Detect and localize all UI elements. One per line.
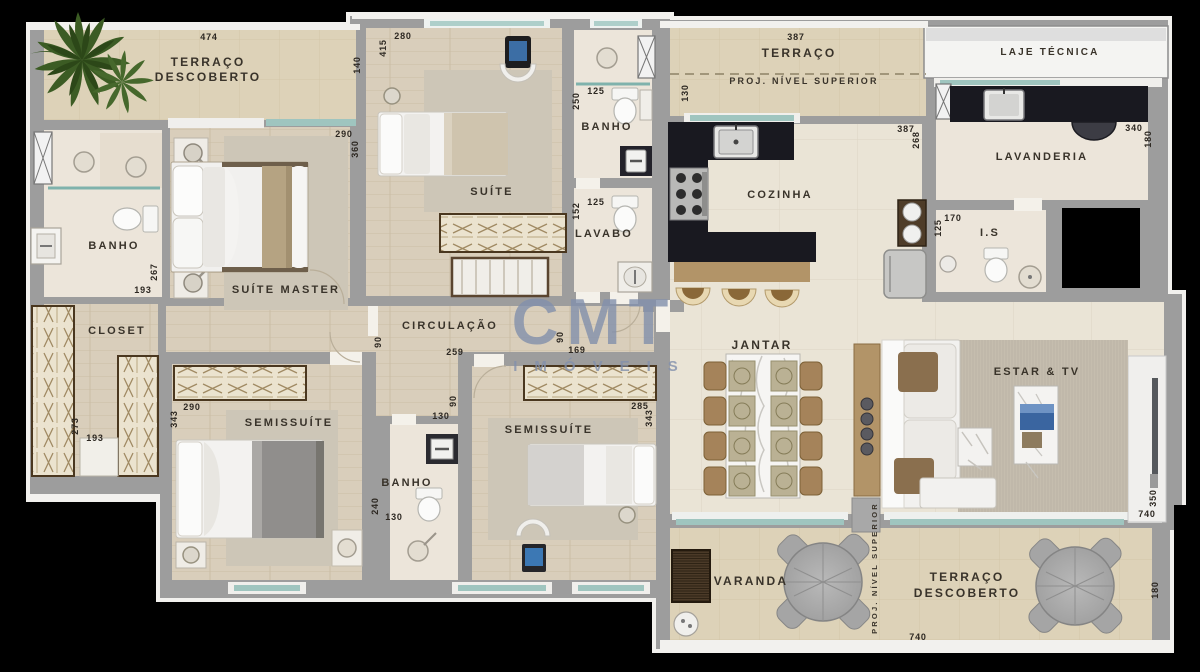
svg-text:273: 273 (70, 417, 80, 434)
svg-text:TERRAÇO: TERRAÇO (171, 55, 246, 69)
svg-text:TERRAÇO: TERRAÇO (762, 46, 837, 60)
svg-text:180: 180 (1143, 130, 1153, 147)
svg-text:PROJ. NÍVEL SUPERIOR: PROJ. NÍVEL SUPERIOR (729, 76, 878, 86)
svg-text:JANTAR: JANTAR (732, 338, 793, 352)
svg-text:CMT: CMT (512, 285, 677, 358)
svg-text:250: 250 (571, 92, 581, 109)
svg-text:DESCOBERTO: DESCOBERTO (155, 70, 261, 84)
svg-text:TERRAÇO: TERRAÇO (930, 570, 1005, 584)
svg-text:267: 267 (149, 263, 159, 280)
svg-text:125: 125 (933, 219, 943, 236)
svg-text:268: 268 (911, 131, 921, 148)
svg-text:340: 340 (1125, 123, 1142, 133)
svg-text:VARANDA: VARANDA (714, 574, 789, 588)
svg-text:BANHO: BANHO (381, 477, 432, 489)
svg-text:130: 130 (680, 84, 690, 101)
svg-text:125: 125 (587, 197, 604, 207)
svg-text:90: 90 (448, 395, 458, 407)
svg-text:180: 180 (1150, 581, 1160, 598)
svg-text:90: 90 (373, 336, 383, 348)
svg-text:130: 130 (385, 512, 402, 522)
svg-text:360: 360 (350, 140, 360, 157)
svg-text:PROJ. NÍVEL SUPERIOR: PROJ. NÍVEL SUPERIOR (870, 502, 879, 634)
svg-text:193: 193 (134, 285, 151, 295)
svg-text:SEMISSUÍTE: SEMISSUÍTE (245, 416, 334, 429)
svg-text:LAJE TÉCNICA: LAJE TÉCNICA (1000, 45, 1099, 58)
svg-text:343: 343 (169, 410, 179, 427)
svg-text:CIRCULAÇÃO: CIRCULAÇÃO (402, 319, 498, 332)
svg-text:343: 343 (644, 409, 654, 426)
svg-text:COZINHA: COZINHA (747, 189, 813, 201)
svg-text:415: 415 (378, 39, 388, 56)
svg-text:LAVANDERIA: LAVANDERIA (996, 151, 1088, 163)
svg-text:240: 240 (370, 497, 380, 514)
svg-text:I.S: I.S (980, 227, 1000, 239)
svg-text:474: 474 (200, 32, 217, 42)
svg-text:SUÍTE MASTER: SUÍTE MASTER (232, 283, 340, 296)
svg-text:SUÍTE: SUÍTE (470, 185, 513, 198)
svg-text:CLOSET: CLOSET (88, 325, 146, 337)
svg-text:BANHO: BANHO (88, 240, 139, 252)
svg-text:170: 170 (944, 213, 961, 223)
svg-text:140: 140 (352, 56, 362, 73)
svg-text:DESCOBERTO: DESCOBERTO (914, 586, 1020, 600)
svg-text:350: 350 (1148, 489, 1158, 506)
svg-text:290: 290 (335, 129, 352, 139)
svg-text:152: 152 (571, 202, 581, 219)
svg-text:LAVABO: LAVABO (575, 228, 633, 240)
svg-text:130: 130 (432, 411, 449, 421)
svg-text:125: 125 (587, 86, 604, 96)
svg-text:193: 193 (86, 433, 103, 443)
svg-text:280: 280 (394, 31, 411, 41)
svg-text:BANHO: BANHO (581, 121, 632, 133)
svg-text:740: 740 (909, 632, 926, 642)
svg-text:259: 259 (446, 347, 463, 357)
svg-text:SEMISSUÍTE: SEMISSUÍTE (505, 423, 594, 436)
svg-text:290: 290 (183, 402, 200, 412)
svg-text:740: 740 (1138, 509, 1155, 519)
svg-text:387: 387 (787, 32, 804, 42)
svg-text:IMÓVEIS: IMÓVEIS (513, 357, 695, 375)
svg-text:ESTAR & TV: ESTAR & TV (994, 366, 1081, 378)
